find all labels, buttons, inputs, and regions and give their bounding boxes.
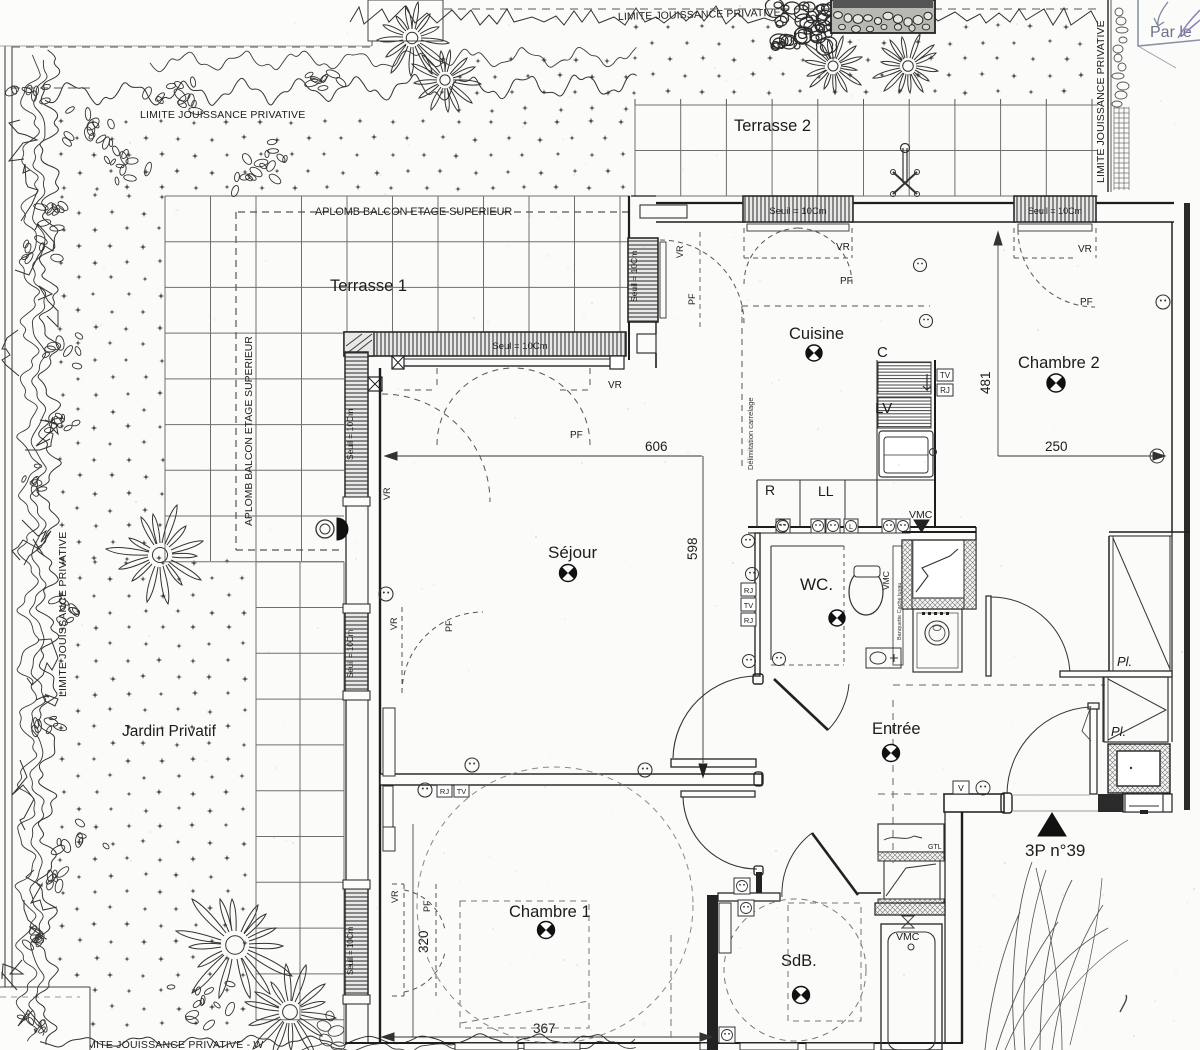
svg-text:Terrasse 1: Terrasse 1 [330, 277, 407, 295]
svg-text:APLOMB BALCON ETAGE SUPERIEUR: APLOMB BALCON ETAGE SUPERIEUR [315, 206, 512, 218]
svg-text:Délimitation carrelage: Délimitation carrelage [746, 397, 755, 470]
svg-text:VR: VR [390, 890, 400, 903]
svg-text:3P n°39: 3P n°39 [1025, 841, 1085, 860]
svg-text:Seuil = 10Cm: Seuil = 10Cm [629, 251, 639, 302]
svg-text:PF: PF [570, 430, 583, 441]
svg-text:481: 481 [978, 371, 993, 394]
svg-text:VMC: VMC [909, 509, 933, 521]
svg-text:Chambre 1: Chambre 1 [509, 903, 591, 921]
svg-text:Entrée: Entrée [872, 720, 921, 738]
svg-text:VR: VR [1078, 244, 1092, 255]
svg-text:Terrasse 2: Terrasse 2 [734, 117, 811, 135]
svg-text:250: 250 [1045, 439, 1068, 454]
svg-text:VR: VR [382, 487, 392, 500]
svg-text:RJ: RJ [940, 386, 950, 395]
svg-text:LIMITE JOUISSANCE PRIVATIVE -: LIMITE JOUISSANCE PRIVATIVE - W [78, 1039, 264, 1050]
svg-text:VR: VR [836, 242, 850, 253]
svg-text:WC.: WC. [800, 575, 833, 594]
svg-text:VR: VR [608, 380, 622, 391]
svg-text:Seuil = 10Cm: Seuil = 10Cm [346, 926, 355, 975]
svg-text:L: L [849, 524, 853, 531]
svg-text:TV: TV [457, 787, 467, 796]
svg-text:598: 598 [685, 537, 700, 560]
svg-text:Chambre 2: Chambre 2 [1018, 354, 1100, 372]
svg-text:LIMITE JOUISSANCE PRIVATIVE: LIMITE JOUISSANCE PRIVATIVE [1095, 20, 1107, 183]
svg-text:RJ: RJ [744, 616, 753, 625]
svg-text:TV: TV [744, 601, 754, 610]
svg-text:VMC: VMC [881, 571, 891, 590]
svg-text:VR: VR [675, 245, 685, 258]
svg-text:PF: PF [444, 620, 454, 632]
svg-text:Cuisine: Cuisine [789, 325, 844, 343]
svg-text:Pl.: Pl. [1117, 654, 1132, 669]
svg-text:RJ: RJ [744, 586, 753, 595]
svg-text:PF: PF [840, 276, 853, 287]
svg-text:Seuil = 10Cm: Seuil = 10Cm [1028, 206, 1082, 216]
svg-text:PF: PF [422, 900, 432, 912]
svg-text:LIMITE JOUISSANCE PRIVATIVE: LIMITE JOUISSANCE PRIVATIVE [57, 532, 69, 697]
svg-text:LIMITE JOUISSANCE PRIVATIVE: LIMITE JOUISSANCE PRIVATIVE [140, 109, 305, 121]
svg-text:TV: TV [940, 371, 951, 380]
svg-text:LV: LV [875, 400, 892, 417]
svg-text:GTL: GTL [928, 844, 942, 851]
svg-text:PF: PF [1080, 297, 1093, 308]
svg-text:Séjour: Séjour [548, 543, 597, 562]
svg-text:VR: VR [389, 617, 399, 630]
svg-text:Seuil = 10Cm: Seuil = 10Cm [769, 206, 826, 217]
svg-text:RJ: RJ [440, 787, 449, 796]
svg-text:606: 606 [645, 439, 668, 454]
svg-text:LL: LL [818, 483, 834, 499]
svg-text:PF: PF [687, 293, 697, 305]
svg-text:Pl.: Pl. [1111, 724, 1126, 739]
svg-text:V: V [958, 783, 964, 793]
svg-text:320: 320 [416, 930, 431, 953]
svg-text:Seul = 10Cm: Seul = 10Cm [492, 341, 547, 352]
svg-text:R: R [765, 482, 775, 498]
svg-text:Jardin Privatif: Jardin Privatif [122, 723, 217, 740]
svg-text:Seuil = 10Cm: Seuil = 10Cm [345, 409, 355, 460]
svg-text:VMC: VMC [896, 931, 920, 943]
svg-text:C: C [877, 344, 888, 361]
svg-text:Seuil = 10Cm: Seuil = 10Cm [346, 629, 355, 678]
svg-text:APLOMB BALCON ETAGE SUPERIEUR: APLOMB BALCON ETAGE SUPERIEUR [244, 336, 255, 526]
